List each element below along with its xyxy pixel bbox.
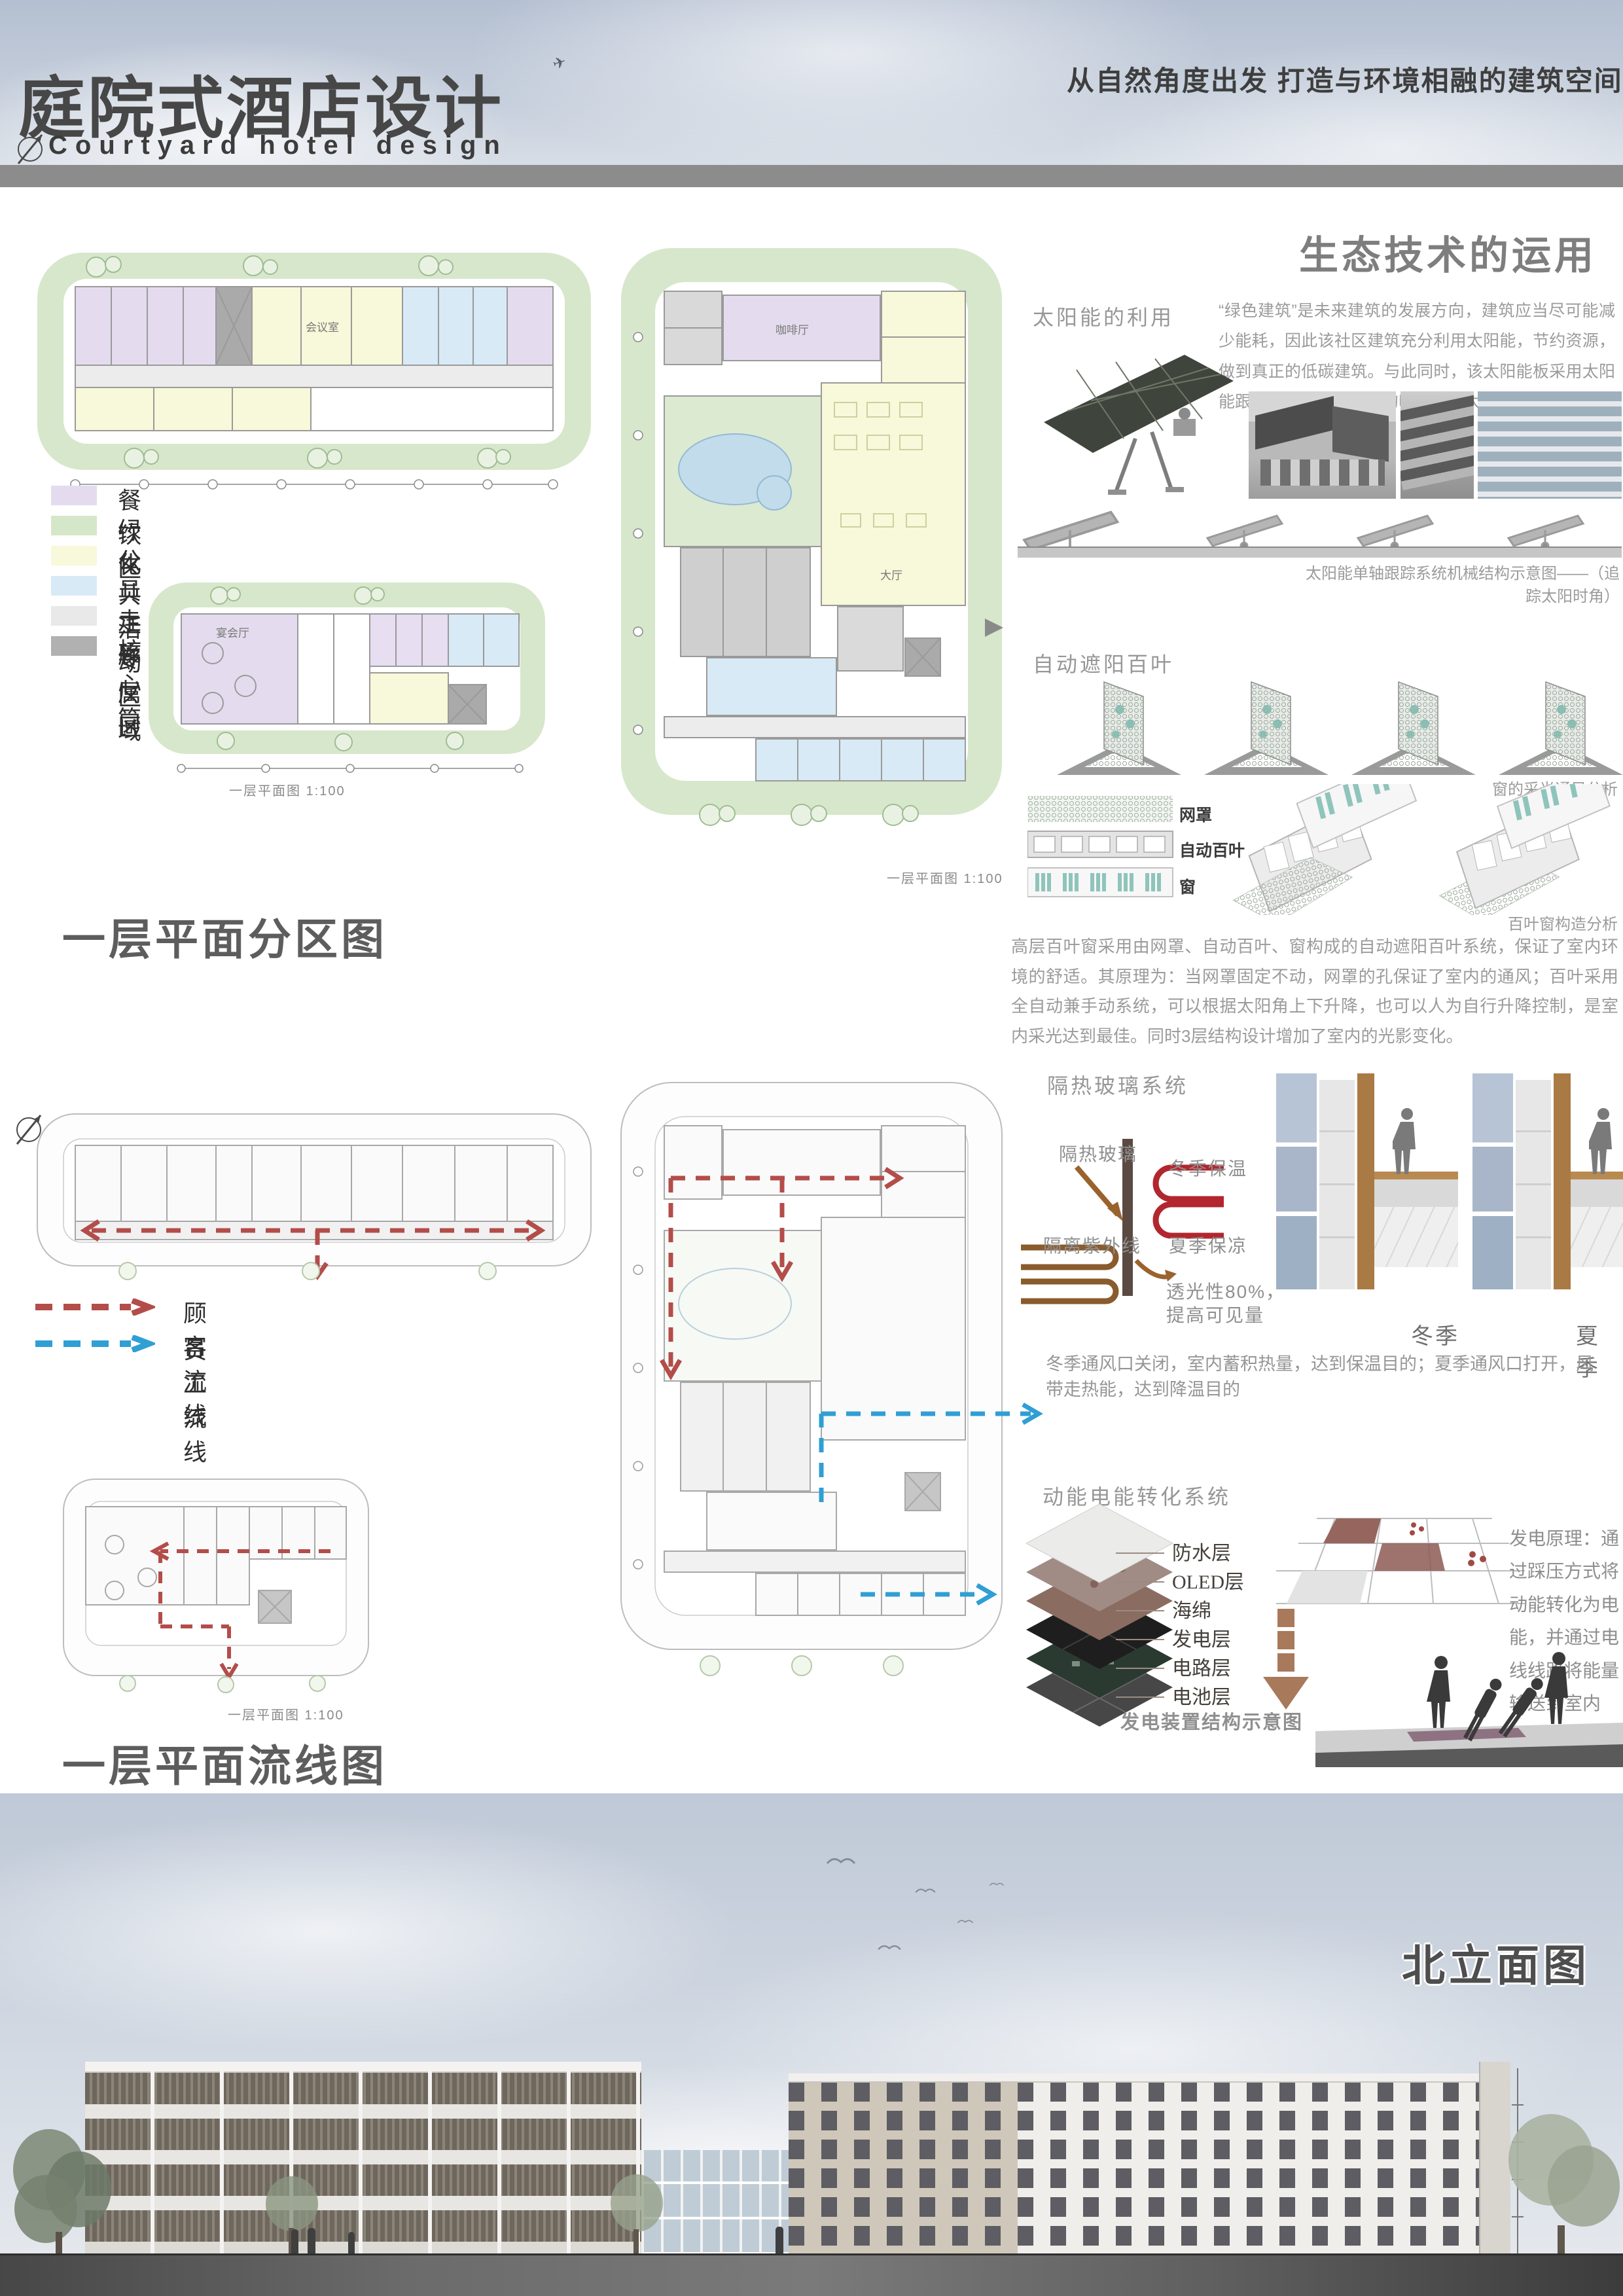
flow-plan-e <box>62 1473 370 1705</box>
tree <box>1495 2111 1623 2261</box>
room-label-meeting: 会议室 <box>306 321 339 334</box>
person-silhouette <box>348 2232 355 2254</box>
poster-root: 庭院式酒店设计 Courtyard hotel design 从自然角度出发 打… <box>0 0 1623 2296</box>
lower-cabinet <box>1571 1207 1623 1267</box>
legend-swatch <box>51 606 97 626</box>
header-divider-bar <box>0 165 1623 187</box>
lower-cabinet <box>1374 1207 1458 1267</box>
kinetic-layer-label: 海绵 <box>1116 1594 1211 1623</box>
glass-light-label-2: 提高可见量 <box>1166 1301 1264 1327</box>
solar-panel-graphic <box>1018 340 1247 504</box>
flow-plan-f <box>618 1073 1083 1731</box>
glass-winter-label: 冬季保温 <box>1169 1155 1247 1181</box>
person-silhouette <box>1393 1107 1421 1179</box>
room-label-cafe: 咖啡厅 <box>776 324 809 336</box>
legend-swatch <box>51 546 97 565</box>
person-silhouette <box>291 2229 298 2254</box>
room-label-hall: 大厅 <box>880 569 902 582</box>
plan-e-caption: 一层平面图 1:100 <box>228 1704 344 1723</box>
timber-beam <box>1357 1073 1374 1289</box>
roof-panel <box>1255 396 1334 450</box>
eco-section-title: 生态技术的运用 <box>1299 224 1597 281</box>
zoning-heading: 一层平面分区图 <box>62 905 387 967</box>
legend-swatch <box>51 516 97 535</box>
louver-caption-bottom: 百叶窗构造分析 <box>1466 911 1618 934</box>
kinetic-layer-label: 发电层 <box>1116 1623 1231 1652</box>
solar-photo-house <box>1249 391 1396 499</box>
piezo-floor-graphic <box>1276 1505 1525 1613</box>
wall-panel <box>1319 1080 1355 1289</box>
leader-line <box>1116 1668 1164 1669</box>
room-label-banquet: 宴会厅 <box>216 627 249 639</box>
elevation-left-building <box>85 2062 641 2255</box>
elevation-heading: 北立面图 <box>1402 1931 1590 1994</box>
ground-strip <box>0 2253 1623 2296</box>
bird-icon <box>826 1854 856 1869</box>
tree <box>605 2172 668 2260</box>
person-silhouette <box>776 2227 783 2254</box>
zoning-plan-c: 咖啡厅 大厅 <box>618 239 1005 864</box>
elevation-right-parapet <box>789 2073 1479 2083</box>
louver-paragraph: 高层百叶窗采用由网罩、自动百叶、窗构成的自动遮阳百叶系统，保证了室内环境的舒适。… <box>1011 932 1618 1051</box>
season-winter-label: 冬季 <box>1411 1318 1459 1350</box>
timber-beam <box>1554 1073 1571 1289</box>
elevation-right-building-left <box>789 2080 1018 2255</box>
louver-layer-label-mesh: 网罩 <box>1179 802 1212 826</box>
plan-b-caption: 一层平面图 1:100 <box>229 780 346 799</box>
bird-icon <box>915 1886 936 1896</box>
glass-panels <box>1472 1073 1513 1289</box>
tree <box>10 2124 115 2261</box>
piezo-people-graphic <box>1243 1604 1623 1774</box>
north-arrow-icon <box>13 130 47 172</box>
louver-layer-label-window: 窗 <box>1179 874 1196 898</box>
solar-photo-array <box>1478 391 1622 499</box>
glass-light-label-1: 透光性80%， <box>1166 1278 1285 1304</box>
staff-flow-arrow <box>34 1335 155 1352</box>
bird-icon <box>990 1881 1005 1889</box>
glass-paragraph: 冬季通风口关闭，室内蓄积热量，达到保温目的；夏季通风口打开，风带走热能，达到降温… <box>1046 1350 1596 1401</box>
zoning-plan-b: 宴会厅 <box>147 575 546 781</box>
legend-swatch <box>51 636 97 656</box>
legend-swatch <box>51 486 97 505</box>
leader-line <box>1116 1581 1164 1583</box>
person-silhouette <box>1589 1107 1618 1179</box>
mullions <box>85 2062 641 2255</box>
glass-summer-label: 夏季保凉 <box>1169 1232 1247 1258</box>
kinetic-layer-label: 电池层 <box>1116 1681 1231 1710</box>
kinetic-layer-label: OLED层 <box>1116 1566 1244 1594</box>
zoning-plan-a: 会议室 <box>36 241 592 506</box>
solar-tracker-diagram <box>1018 486 1622 562</box>
panel-slats <box>1400 395 1474 490</box>
legend-swatch <box>51 576 97 596</box>
louver-assembly-graphic <box>1230 784 1616 918</box>
louver-heading: 自动遮阳百叶 <box>1033 648 1174 678</box>
page-subtitle: Courtyard hotel design <box>48 131 508 160</box>
leader-line <box>1116 1552 1164 1554</box>
wall-section-summer <box>1472 1073 1623 1289</box>
leader-line <box>1116 1610 1164 1611</box>
solar-photo-detail <box>1400 391 1474 499</box>
plan-c-caption: 一层平面图 1:100 <box>887 868 1003 887</box>
legend-label: 核心筒 <box>118 632 144 734</box>
wall-section-winter <box>1276 1073 1459 1289</box>
louver-layer-strips <box>1027 795 1178 903</box>
flow-heading: 一层平面流线图 <box>62 1731 387 1794</box>
flow-plan-d <box>36 1106 592 1293</box>
house-windows <box>1260 459 1385 486</box>
staff-flow-label: 员工流线 <box>183 1331 209 1467</box>
bird-icon <box>957 1918 973 1926</box>
person-silhouette <box>308 2228 315 2254</box>
bird-icon <box>878 1942 902 1954</box>
louver-analysis-row <box>1057 678 1623 786</box>
solar-caption: 太阳能单轴跟踪系统机械结构示意图——（追踪太阳时角） <box>1299 560 1620 606</box>
leader-line <box>1116 1639 1164 1640</box>
header-slogan: 从自然角度出发 打造与环境相融的建筑空间 <box>1067 59 1623 99</box>
solar-heading: 太阳能的利用 <box>1033 301 1174 331</box>
elevation-right-building-right <box>1018 2080 1479 2255</box>
kinetic-layer-label: 电路层 <box>1116 1652 1231 1681</box>
customer-flow-arrow <box>34 1299 155 1316</box>
glass-panels <box>1276 1073 1317 1289</box>
leader-line <box>1116 1696 1164 1698</box>
wall-panel <box>1516 1080 1551 1289</box>
roof-panel <box>1332 406 1389 461</box>
kinetic-layer-label: 防水层 <box>1116 1537 1231 1566</box>
